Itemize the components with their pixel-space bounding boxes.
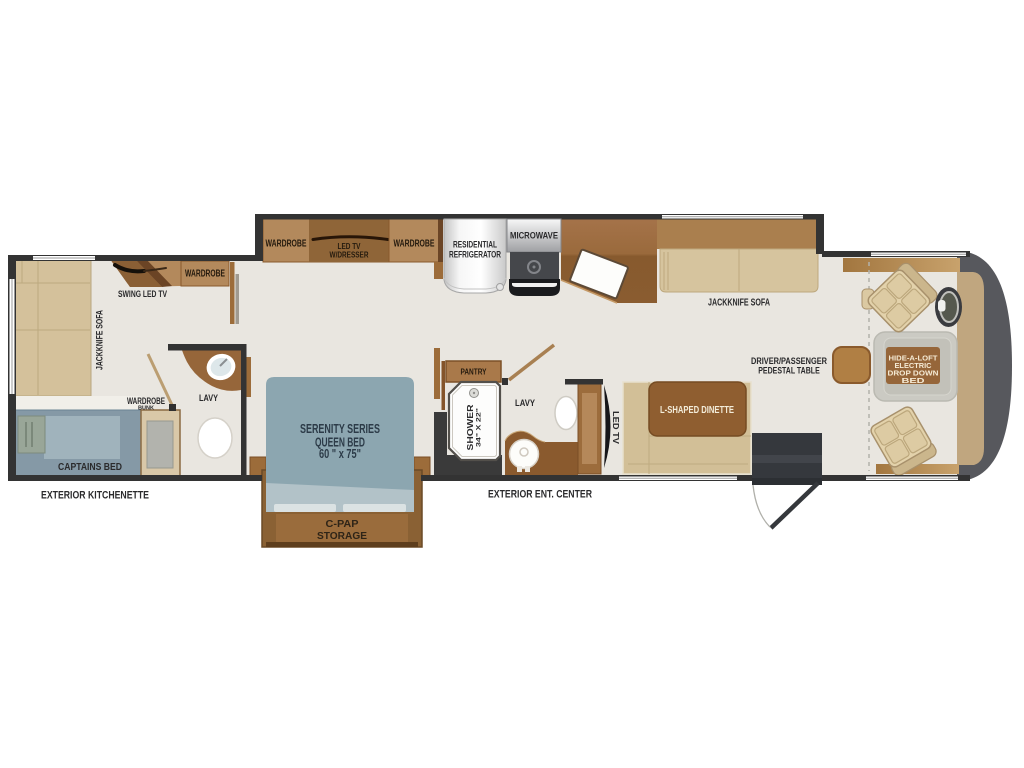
svg-text:SWING LED TV: SWING LED TV (118, 289, 167, 299)
svg-text:WARDROBE: WARDROBE (185, 269, 225, 280)
svg-text:LAVY: LAVY (515, 398, 536, 409)
svg-text:HIDE-A-LOFT: HIDE-A-LOFT (889, 355, 939, 362)
svg-text:JACKKNIFE SOFA: JACKKNIFE SOFA (708, 298, 770, 309)
svg-text:PANTRY: PANTRY (461, 368, 488, 377)
svg-text:SERENITY SERIES: SERENITY SERIES (300, 422, 380, 436)
svg-text:ELECTRIC: ELECTRIC (895, 363, 932, 370)
svg-text:WARDROBE: WARDROBE (394, 238, 435, 250)
svg-text:STORAGE: STORAGE (317, 531, 367, 542)
svg-text:RESIDENTIAL: RESIDENTIAL (453, 240, 497, 250)
svg-text:WARDROBE: WARDROBE (266, 238, 307, 250)
svg-text:SHOWER: SHOWER (466, 404, 475, 450)
svg-text:C-PAP: C-PAP (326, 519, 359, 530)
svg-text:34" X 22": 34" X 22" (476, 408, 483, 447)
svg-text:EXTERIOR KITCHENETTE: EXTERIOR KITCHENETTE (41, 490, 149, 502)
svg-text:BUNK: BUNK (138, 406, 154, 412)
svg-text:JACKKNIFE SOFA: JACKKNIFE SOFA (95, 310, 105, 370)
svg-text:PEDESTAL TABLE: PEDESTAL TABLE (758, 366, 820, 377)
svg-text:DROP DOWN: DROP DOWN (888, 370, 939, 377)
svg-text:L-SHAPED DINETTE: L-SHAPED DINETTE (660, 405, 734, 416)
svg-text:REFRIGERATOR: REFRIGERATOR (449, 250, 501, 260)
svg-text:60 " x 75": 60 " x 75" (319, 447, 361, 461)
svg-text:BED: BED (902, 378, 925, 385)
svg-text:W/DRESSER: W/DRESSER (330, 250, 369, 260)
svg-text:LAVY: LAVY (199, 393, 219, 404)
svg-text:LED TV: LED TV (611, 411, 620, 445)
svg-text:CAPTAINS BED: CAPTAINS BED (58, 462, 122, 473)
svg-text:EXTERIOR ENT. CENTER: EXTERIOR ENT. CENTER (488, 489, 592, 501)
svg-text:MICROWAVE: MICROWAVE (510, 231, 558, 242)
